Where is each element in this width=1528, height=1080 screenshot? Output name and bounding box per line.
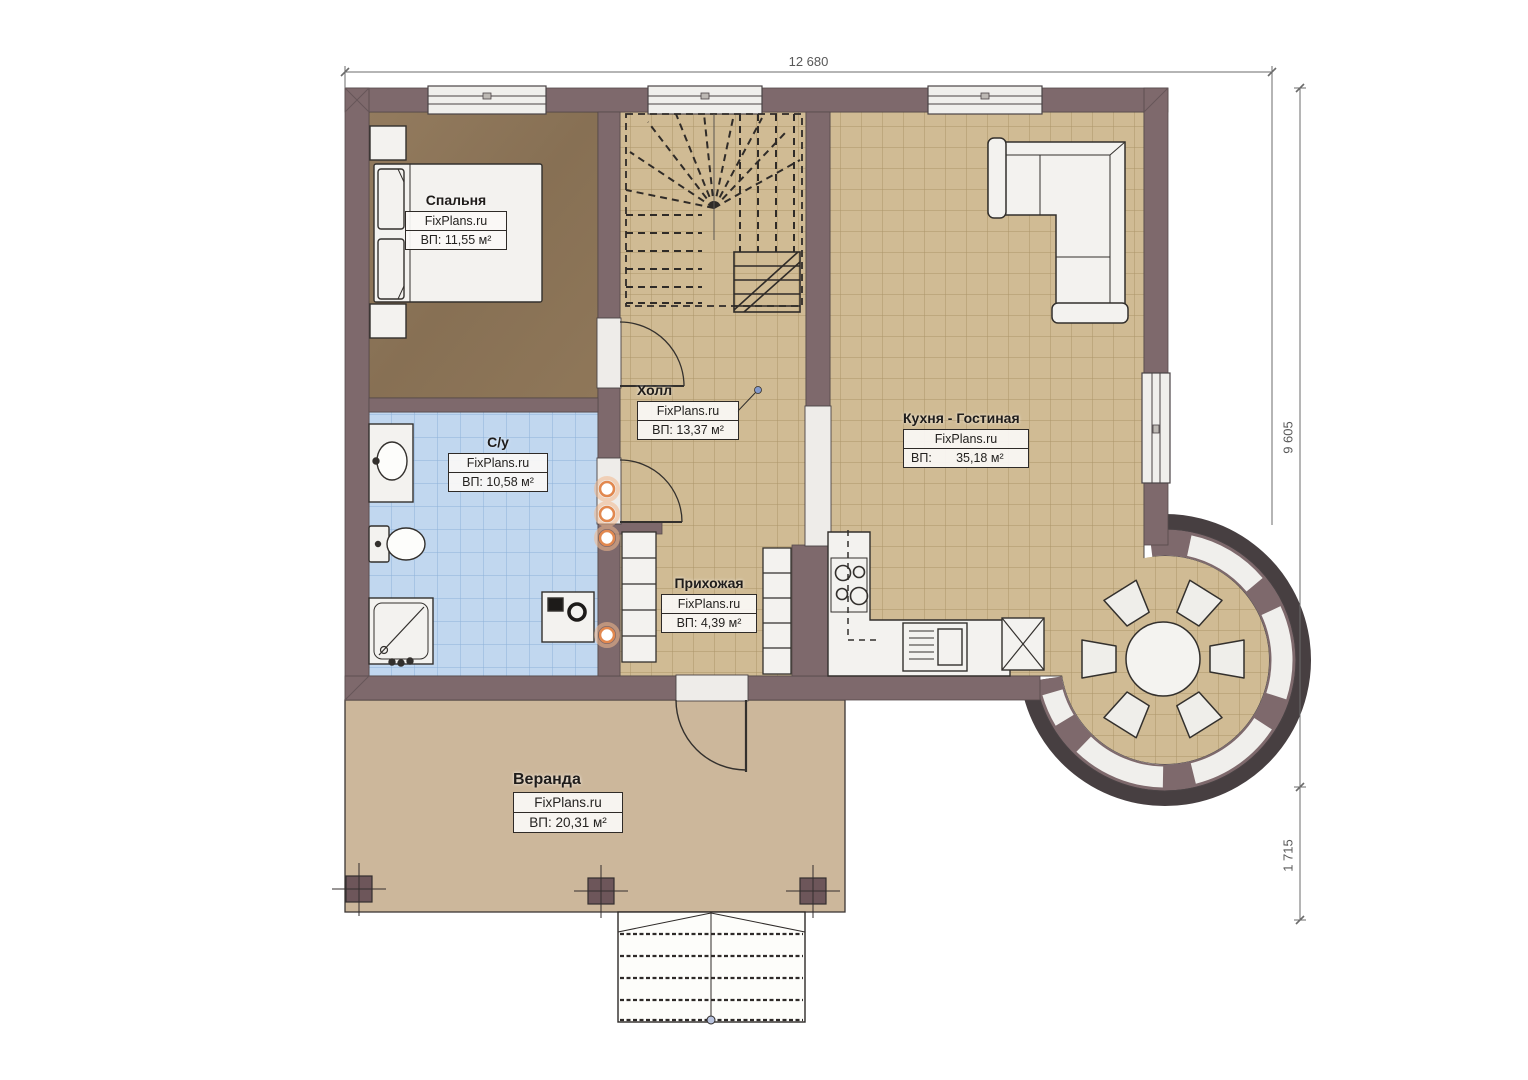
kitchen-brand: FixPlans.ru xyxy=(904,430,1028,448)
floor-plan-drawing xyxy=(0,0,1528,1080)
bathroom-info-box: FixPlans.ru ВП: 10,58 м² xyxy=(448,453,548,492)
washing-machine-symbol xyxy=(542,592,594,642)
entry-info-box: FixPlans.ru ВП: 4,39 м² xyxy=(661,594,757,633)
shower-symbol xyxy=(369,598,433,666)
entry-area: ВП: 4,39 м² xyxy=(662,613,756,632)
veranda-brand: FixPlans.ru xyxy=(514,793,622,812)
veranda-info-box: FixPlans.ru ВП: 20,31 м² xyxy=(513,792,623,833)
bedroom-info-box: FixPlans.ru ВП: 11,55 м² xyxy=(405,211,507,250)
veranda-label: Веранда FixPlans.ru ВП: 20,31 м² xyxy=(513,771,623,833)
bathroom-room-name: С/у xyxy=(448,434,548,450)
kitchen-info-box: FixPlans.ru ВП: 35,18 м² xyxy=(903,429,1029,468)
entrance-steps-symbol xyxy=(618,912,805,1024)
entry-brand: FixPlans.ru xyxy=(662,595,756,613)
sink-vanity-symbol xyxy=(369,424,413,502)
kitchen-label: Кухня - Гостиная FixPlans.ru ВП: 35,18 м… xyxy=(903,410,1029,468)
window-kitchen-top xyxy=(928,86,1042,114)
window-kitchen-right xyxy=(1142,373,1170,483)
toilet-symbol xyxy=(369,526,425,562)
hall-info-box: FixPlans.ru ВП: 13,37 м² xyxy=(637,401,739,440)
entry-label: Прихожая FixPlans.ru ВП: 4,39 м² xyxy=(661,575,757,633)
bathroom-brand: FixPlans.ru xyxy=(449,454,547,472)
veranda-room-name: Веранда xyxy=(513,771,623,789)
hall-area: ВП: 13,37 м² xyxy=(638,420,738,439)
kitchen-area: ВП: 35,18 м² xyxy=(904,448,1028,467)
dimension-height-main: 9 605 xyxy=(1281,408,1296,468)
floor-plan-canvas: Спальня FixPlans.ru ВП: 11,55 м² С/у Fix… xyxy=(0,0,1528,1080)
bathroom-label: С/у FixPlans.ru ВП: 10,58 м² xyxy=(448,434,548,492)
hall-brand: FixPlans.ru xyxy=(638,402,738,420)
bathroom-area: ВП: 10,58 м² xyxy=(449,472,547,491)
hall-label: Холл FixPlans.ru ВП: 13,37 м² xyxy=(637,382,739,440)
kitchen-room-name: Кухня - Гостиная xyxy=(903,410,1029,426)
bedroom-room-name: Спальня xyxy=(405,192,507,208)
fridge-symbol xyxy=(1002,618,1044,670)
entry-room-name: Прихожая xyxy=(661,575,757,591)
dimension-width-total: 12 680 xyxy=(345,54,1272,69)
hall-room-name: Холл xyxy=(637,382,739,398)
bedroom-label: Спальня FixPlans.ru ВП: 11,55 м² xyxy=(405,192,507,250)
bedroom-area: ВП: 11,55 м² xyxy=(406,230,506,249)
nightstand-symbol xyxy=(370,304,406,338)
nightstand-symbol xyxy=(370,126,406,160)
window-bedroom-top xyxy=(428,86,546,114)
veranda-area: ВП: 20,31 м² xyxy=(514,812,622,832)
dimension-height-veranda: 1 715 xyxy=(1281,826,1296,886)
window-stairs-top xyxy=(648,86,762,114)
bedroom-brand: FixPlans.ru xyxy=(406,212,506,230)
